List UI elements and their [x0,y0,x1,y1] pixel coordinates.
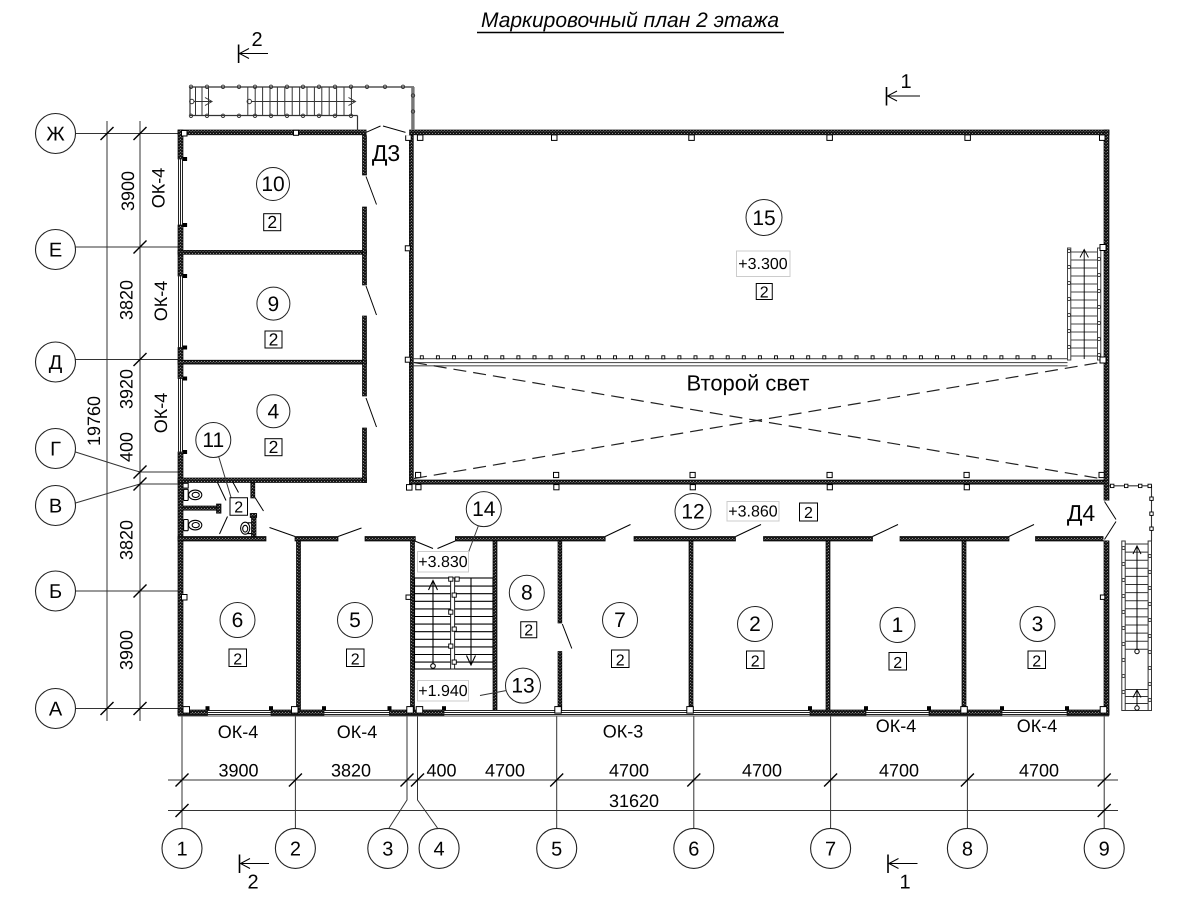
svg-text:400: 400 [426,761,456,781]
svg-text:11: 11 [202,429,224,452]
svg-text:+3.860: +3.860 [728,504,777,521]
svg-text:2: 2 [234,500,243,517]
svg-text:2: 2 [893,655,902,672]
svg-text:Д4: Д4 [1067,500,1096,526]
svg-text:14: 14 [472,498,496,521]
svg-text:2: 2 [251,29,262,51]
svg-text:6: 6 [232,609,244,632]
svg-text:+1.940: +1.940 [418,683,467,700]
svg-text:2: 2 [269,330,279,350]
svg-text:4700: 4700 [1019,761,1059,781]
svg-text:2: 2 [267,212,277,232]
svg-text:ОК-4: ОК-4 [218,722,259,742]
svg-text:ОК-4: ОК-4 [1017,716,1058,736]
svg-text:ОК-4: ОК-4 [151,393,171,434]
svg-text:ОК-3: ОК-3 [603,722,644,742]
svg-text:+3.830: +3.830 [418,554,467,571]
svg-text:Е: Е [49,240,62,262]
svg-text:ОК-4: ОК-4 [876,716,917,736]
svg-text:3820: 3820 [117,520,137,560]
svg-text:1: 1 [900,71,911,93]
svg-text:2: 2 [524,623,533,640]
svg-text:3900: 3900 [117,630,137,670]
svg-text:13: 13 [511,675,534,698]
svg-text:8: 8 [521,582,533,605]
svg-text:2: 2 [749,613,761,636]
svg-text:ОК-4: ОК-4 [149,168,169,209]
svg-text:4700: 4700 [609,761,649,781]
svg-text:4: 4 [268,401,280,424]
svg-text:ОК-4: ОК-4 [151,281,171,322]
svg-text:Д: Д [49,352,63,374]
svg-text:В: В [49,496,62,518]
svg-text:5: 5 [349,609,361,632]
svg-text:4700: 4700 [485,761,525,781]
svg-text:2: 2 [760,284,769,301]
svg-text:2: 2 [247,872,258,894]
svg-text:2: 2 [233,651,242,668]
svg-text:19760: 19760 [84,396,104,446]
svg-text:1: 1 [176,838,187,860]
svg-text:4700: 4700 [879,761,919,781]
svg-text:2: 2 [269,437,279,457]
svg-text:9: 9 [268,293,280,316]
svg-text:31620: 31620 [609,791,659,811]
svg-text:Ж: Ж [46,124,65,146]
svg-text:2: 2 [751,653,760,670]
svg-text:7: 7 [614,609,626,632]
svg-text:2: 2 [1032,653,1041,670]
svg-text:ОК-4: ОК-4 [337,722,378,742]
svg-text:3900: 3900 [118,171,138,211]
svg-text:Д3: Д3 [372,140,400,166]
svg-text:3: 3 [382,838,393,860]
svg-text:2: 2 [804,505,813,522]
svg-text:Г: Г [50,439,61,461]
svg-text:2: 2 [616,652,625,669]
svg-text:400: 400 [117,432,137,462]
svg-text:2: 2 [290,838,301,860]
svg-text:Маркировочный план 2 этажа: Маркировочный план 2 этажа [481,9,779,32]
svg-text:7: 7 [825,838,836,860]
svg-text:4700: 4700 [742,761,782,781]
svg-text:4: 4 [434,838,445,860]
svg-text:1: 1 [899,872,910,894]
svg-text:Второй свет: Второй свет [687,371,810,396]
svg-text:3820: 3820 [331,761,371,781]
svg-text:3: 3 [1032,613,1044,636]
svg-text:+3.300: +3.300 [738,256,787,273]
svg-text:10: 10 [261,173,284,196]
svg-text:3900: 3900 [218,761,258,781]
svg-text:6: 6 [688,838,699,860]
svg-text:А: А [49,699,63,721]
svg-text:3920: 3920 [117,369,137,409]
svg-text:12: 12 [681,501,704,524]
svg-text:2: 2 [351,651,360,668]
svg-text:9: 9 [1099,838,1110,860]
svg-text:1: 1 [892,614,904,637]
svg-text:15: 15 [752,207,775,230]
svg-text:5: 5 [551,838,562,860]
svg-text:8: 8 [962,838,973,860]
svg-text:3820: 3820 [117,280,137,320]
svg-text:Б: Б [49,581,62,603]
